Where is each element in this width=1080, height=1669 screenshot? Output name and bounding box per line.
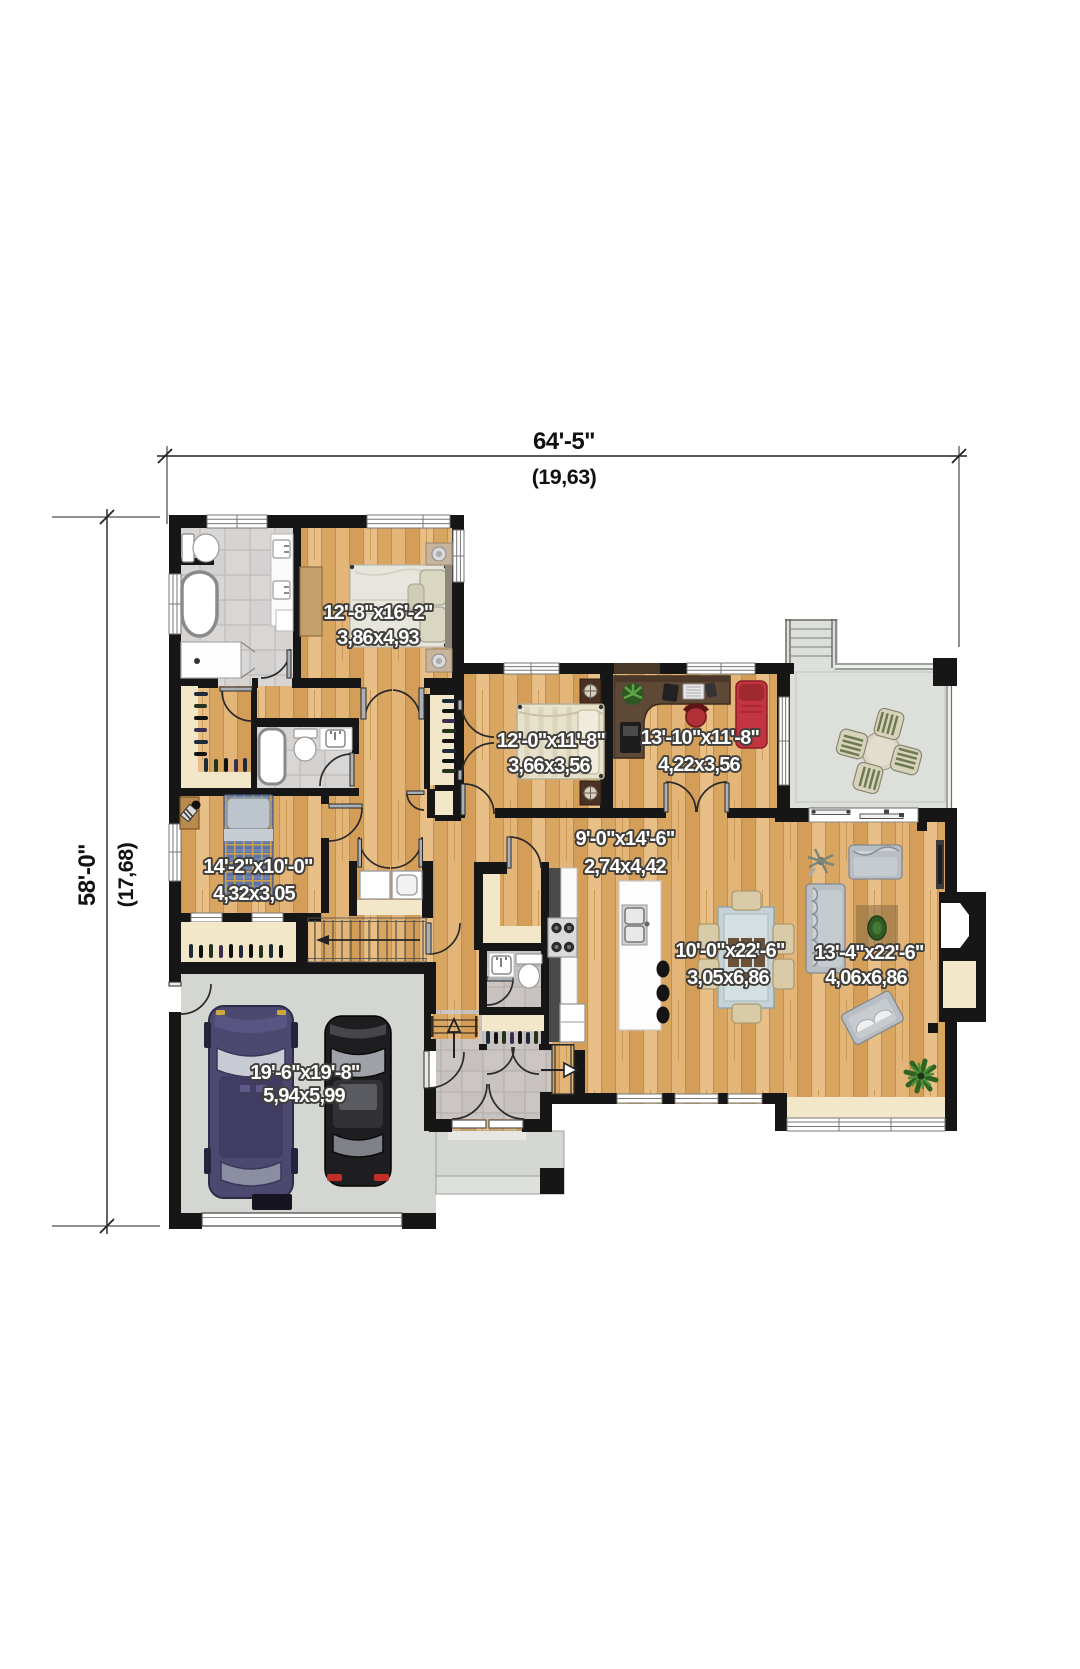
svg-text:5,94x5,99: 5,94x5,99 [263, 1085, 345, 1107]
svg-text:13'-4"x22'-6": 13'-4"x22'-6" [814, 942, 924, 964]
svg-text:13'-10"x11'-8": 13'-10"x11'-8" [641, 727, 760, 749]
svg-text:19'-6"x19'-8": 19'-6"x19'-8" [250, 1062, 360, 1084]
svg-text:14'-2"x10'-0": 14'-2"x10'-0" [203, 856, 313, 878]
svg-text:2,74x4,42: 2,74x4,42 [584, 856, 666, 878]
svg-text:4,06x6,86: 4,06x6,86 [825, 967, 907, 989]
svg-text:4,32x3,05: 4,32x3,05 [213, 883, 295, 905]
svg-text:4,22x3,56: 4,22x3,56 [658, 754, 740, 776]
svg-text:9'-0"x14'-6": 9'-0"x14'-6" [576, 828, 675, 850]
svg-text:3,86x4,93: 3,86x4,93 [337, 627, 419, 649]
svg-text:10'-0"x22'-6": 10'-0"x22'-6" [675, 940, 785, 962]
svg-text:64'-5": 64'-5" [533, 428, 595, 455]
svg-text:58'-0": 58'-0" [74, 844, 101, 906]
svg-text:3,66x3,56: 3,66x3,56 [508, 755, 590, 777]
svg-text:(19,63): (19,63) [532, 465, 597, 489]
svg-text:12'-8"x16'-2": 12'-8"x16'-2" [323, 602, 433, 624]
svg-text:12'-0"x11'-8": 12'-0"x11'-8" [497, 730, 605, 752]
svg-text:(17,68): (17,68) [114, 842, 138, 907]
svg-text:3,05x6,86: 3,05x6,86 [687, 967, 769, 989]
